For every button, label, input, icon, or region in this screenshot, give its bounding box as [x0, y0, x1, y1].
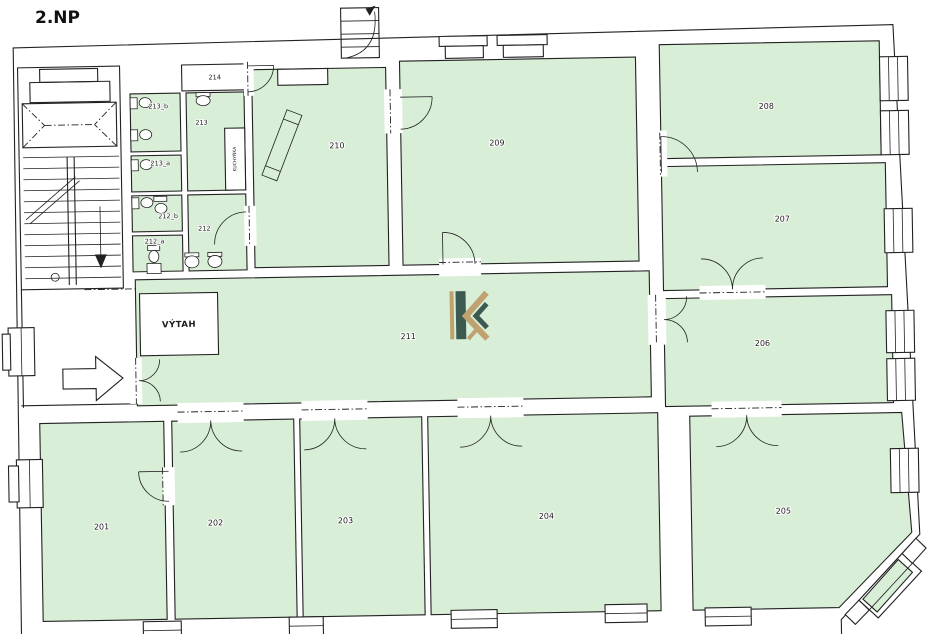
floor-title: 2.NP	[35, 8, 80, 28]
label-208: 208	[759, 102, 774, 111]
label-213a: 213_a	[150, 159, 170, 167]
label-212b: 212_b	[158, 212, 178, 220]
label-201: 201	[94, 522, 109, 531]
label-202: 202	[208, 518, 223, 527]
label-elevator: VÝTAH	[162, 318, 196, 331]
label-213b: 213_b	[148, 102, 168, 110]
room-206	[664, 295, 894, 407]
room-209	[399, 57, 639, 265]
floor-plan-drawing: 214 213_b 213 213_a 212_b 212 212_a 210 …	[0, 0, 939, 634]
label-206: 206	[755, 339, 770, 348]
room-210	[252, 67, 389, 267]
label-212a: 212_a	[145, 237, 165, 245]
room-203	[300, 417, 425, 617]
label-203: 203	[338, 516, 353, 525]
room-201	[40, 421, 167, 621]
label-207: 207	[775, 214, 790, 223]
label-209: 209	[489, 138, 504, 147]
room-202	[172, 419, 297, 619]
label-204: 204	[539, 512, 554, 521]
floor-plan-canvas: 2.NP	[0, 0, 939, 634]
label-212: 212	[198, 225, 211, 233]
label-210: 210	[329, 141, 344, 150]
label-214: 214	[208, 73, 221, 81]
label-213: 213	[195, 119, 208, 127]
room-210-wall-notch	[278, 68, 328, 85]
room-207	[661, 163, 887, 291]
room-208	[659, 41, 881, 159]
label-205: 205	[776, 506, 791, 515]
label-211: 211	[401, 332, 416, 341]
